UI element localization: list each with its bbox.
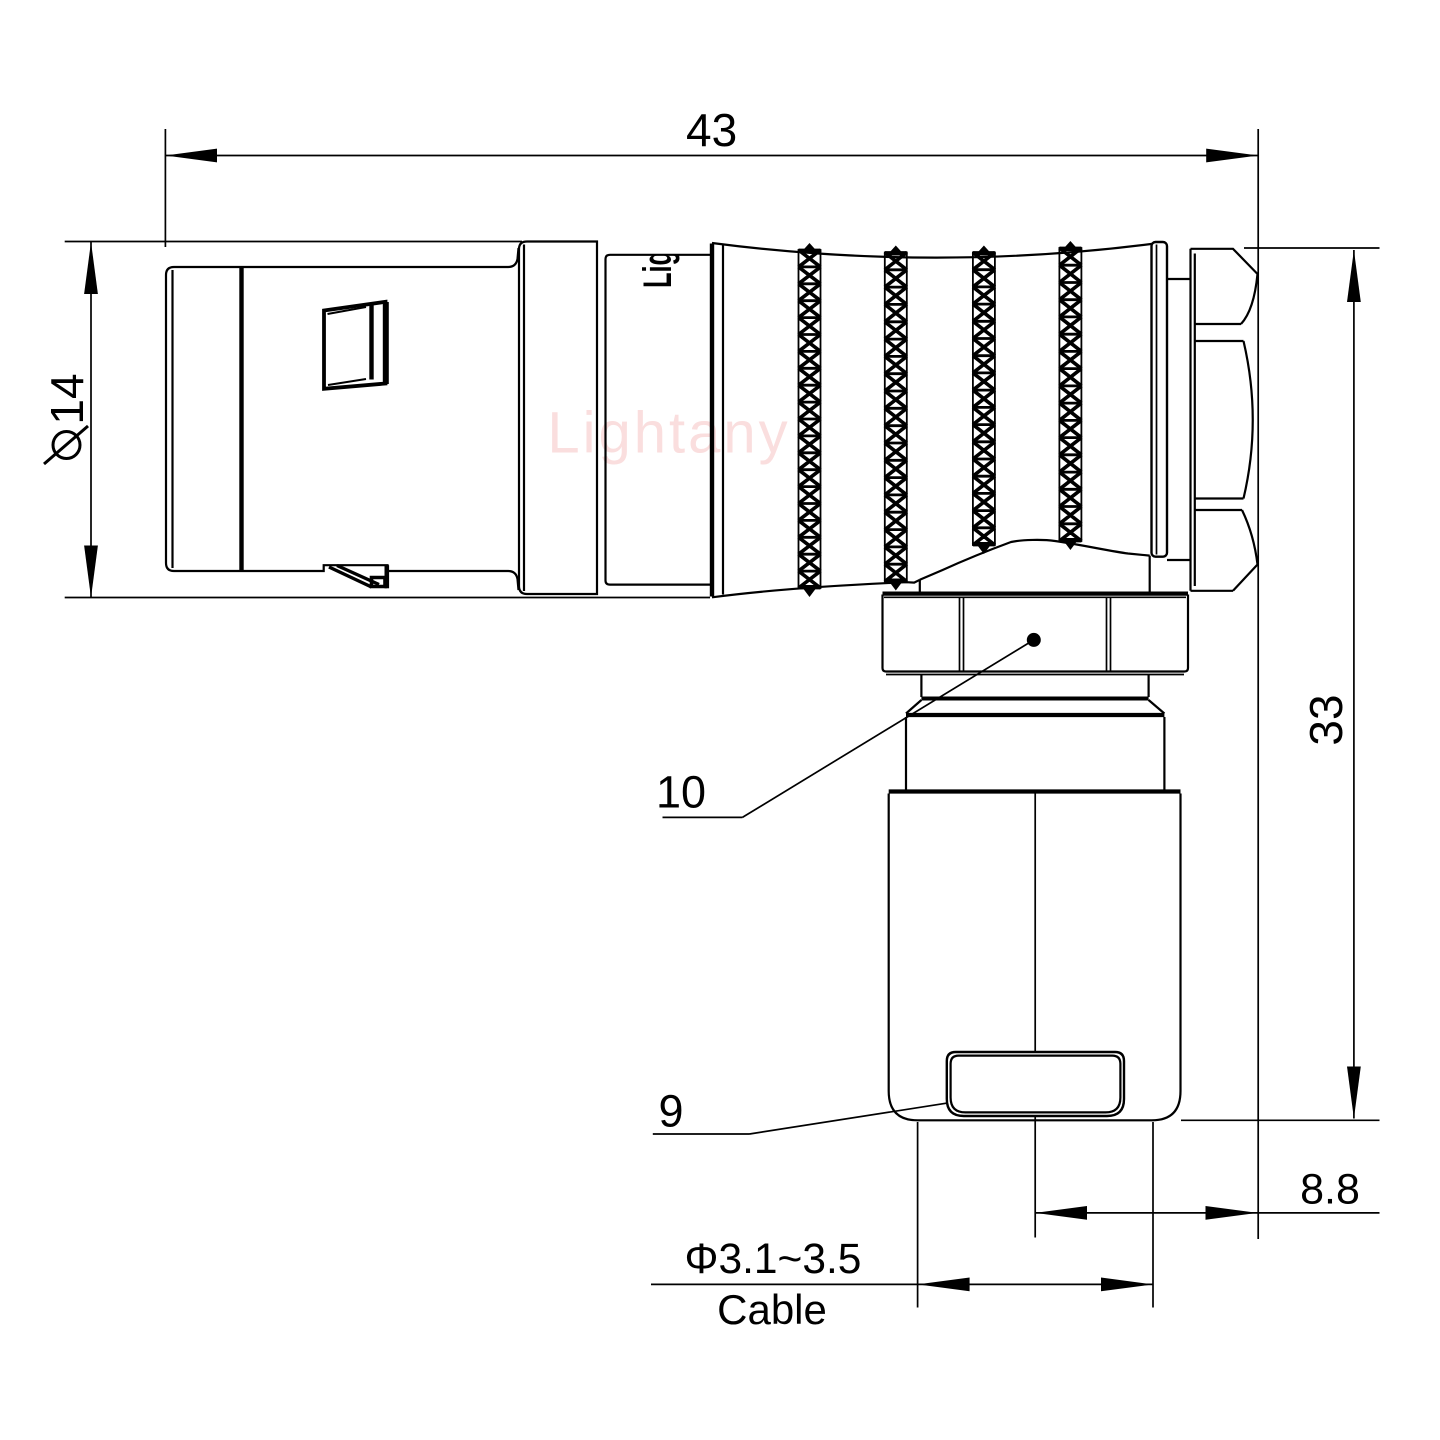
svg-text:43: 43 [686,104,737,156]
svg-text:10: 10 [656,767,706,818]
svg-text:9: 9 [658,1086,683,1137]
svg-text:Lightany: Lightany [547,401,790,466]
svg-text:14: 14 [41,373,93,424]
svg-text:33: 33 [1300,694,1352,745]
svg-text:8.8: 8.8 [1300,1166,1360,1214]
svg-text:Φ3.1~3.5: Φ3.1~3.5 [685,1236,862,1283]
svg-text:Cable: Cable [717,1286,827,1333]
svg-text:Lig: Lig [636,250,680,288]
